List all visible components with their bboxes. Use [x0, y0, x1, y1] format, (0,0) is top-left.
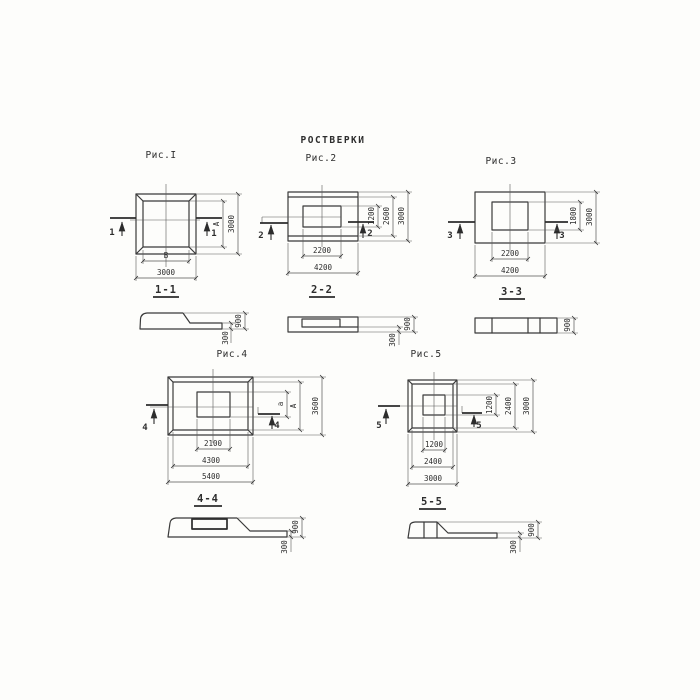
- fig1-sec-flange: 300: [221, 331, 230, 345]
- grillage-drawing: РОСТВЕРКИ Рис.I 1 1: [0, 0, 700, 700]
- section-cut-marker-4-left: 4: [142, 405, 168, 433]
- cut-number: 4: [274, 421, 280, 431]
- fig3-dim-outer-width: 4200: [501, 266, 520, 275]
- section-2-title: 2-2: [311, 284, 333, 296]
- section-cut-marker-1-right: 1: [196, 218, 222, 239]
- fig5-dim-inner-height: 1200: [485, 395, 494, 414]
- fig1-dim-inner-width: В: [164, 251, 169, 260]
- section-5-title: 5-5: [421, 496, 443, 508]
- cut-number: 3: [559, 231, 564, 241]
- fig4-dim-outer-width: 5400: [202, 472, 221, 481]
- figure-5-section: 5-5 300 900: [408, 496, 542, 554]
- fig5-sec-height: 900: [527, 523, 536, 537]
- figure-4-section: 4-4 300 900: [168, 493, 306, 554]
- fig5-dim-outer-width: 3000: [424, 474, 443, 483]
- section-cut-marker-5-center: 5: [462, 406, 482, 431]
- fig3-dim-inner-height: 1800: [569, 206, 578, 225]
- fig3-dim-inner-width: 2200: [501, 249, 520, 258]
- section-cut-marker-5-left: 5: [376, 406, 400, 431]
- fig4-dim-outer-height: 3600: [311, 396, 320, 415]
- fig2-sec-height: 900: [403, 317, 412, 331]
- figure-2-section: 2-2 300 900: [288, 284, 418, 347]
- figure-3-label: Рис.3: [485, 156, 516, 167]
- fig2-dim-mid-height: 2600: [382, 206, 391, 225]
- figure-1: Рис.I 1 1 В: [109, 150, 249, 345]
- fig4-dim-mid-height: А: [289, 403, 298, 408]
- cut-number: 4: [142, 423, 148, 433]
- figure-5: Рис.5 5 5: [376, 349, 542, 554]
- fig1-dim-outer-height: 3000: [227, 214, 236, 233]
- section-1-title: 1-1: [155, 284, 177, 296]
- fig1-dim-outer-width: 3000: [157, 268, 176, 277]
- fig5-dim-inner-width: 1200: [425, 440, 444, 449]
- figure-2-plan: 2 2 1200 2600 3000 2200: [258, 185, 412, 276]
- drawing-sheet: РОСТВЕРКИ Рис.I 1 1: [0, 0, 700, 700]
- cut-number: 5: [476, 421, 481, 431]
- figure-1-label: Рис.I: [145, 150, 176, 161]
- fig3-dim-outer-height: 3000: [585, 207, 594, 226]
- fig2-dim-inner-width: 2200: [313, 246, 332, 255]
- figure-3-plan: 3 3 1800 3000 2200 4200: [447, 184, 600, 279]
- fig2-dim-inner-height: 1200: [367, 206, 376, 225]
- figure-5-label: Рис.5: [410, 349, 441, 360]
- fig5-dim-mid-width: 2400: [424, 457, 443, 466]
- figure-3: Рис.3 3 3 1800 3000: [447, 156, 600, 333]
- section-4-title: 4-4: [197, 493, 219, 505]
- cut-number: 2: [367, 229, 372, 239]
- section-cut-marker-3-left: 3: [447, 222, 475, 241]
- figure-1-plan: 1 1 В 3000 А 3000: [109, 184, 242, 281]
- section-cut-marker-4-center: 4: [258, 407, 280, 431]
- fig5-dim-outer-height: 3000: [522, 396, 531, 415]
- figure-4-label: Рис.4: [216, 349, 247, 360]
- figure-2: Рис.2 2 2 1200: [258, 153, 418, 347]
- figure-3-section: 3-3 900: [475, 286, 578, 333]
- fig5-dim-mid-height: 2400: [504, 396, 513, 415]
- cut-number: 3: [447, 231, 452, 241]
- figure-4: Рис.4 4 4: [142, 349, 326, 554]
- figure-4-plan: 4 4 а А 3600 2100: [142, 369, 326, 485]
- figure-5-plan: 5 5 1200 2400 3000 120: [376, 372, 537, 487]
- fig4-dim-mid-width: 4300: [202, 456, 221, 465]
- fig4-sec-height: 900: [291, 520, 300, 534]
- section-cut-marker-2-left: 2: [258, 217, 288, 241]
- fig1-dim-inner-height: А: [212, 221, 221, 226]
- fig2-sec-flange: 300: [388, 333, 397, 347]
- fig1-sec-height: 900: [234, 314, 243, 328]
- figure-1-section: 1-1 300 900: [140, 284, 249, 345]
- cut-number: 1: [109, 228, 114, 238]
- cut-number: 5: [376, 421, 381, 431]
- figure-2-label: Рис.2: [305, 153, 336, 164]
- fig4-dim-inner-width: 2100: [204, 439, 223, 448]
- section-3-title: 3-3: [501, 286, 523, 298]
- page-title: РОСТВЕРКИ: [301, 135, 366, 146]
- cut-number: 2: [258, 231, 263, 241]
- fig3-sec-height: 900: [563, 318, 572, 332]
- fig4-dim-inner-height: а: [276, 402, 285, 407]
- cut-number: 1: [211, 229, 216, 239]
- fig2-dim-outer-height: 3000: [397, 206, 406, 225]
- fig2-dim-outer-width: 4200: [314, 263, 333, 272]
- fig5-sec-flange: 300: [509, 540, 518, 554]
- fig4-sec-flange: 300: [280, 540, 289, 554]
- section-cut-marker-3-right: 3: [545, 222, 568, 241]
- section-cut-marker-1-left: 1: [109, 218, 136, 238]
